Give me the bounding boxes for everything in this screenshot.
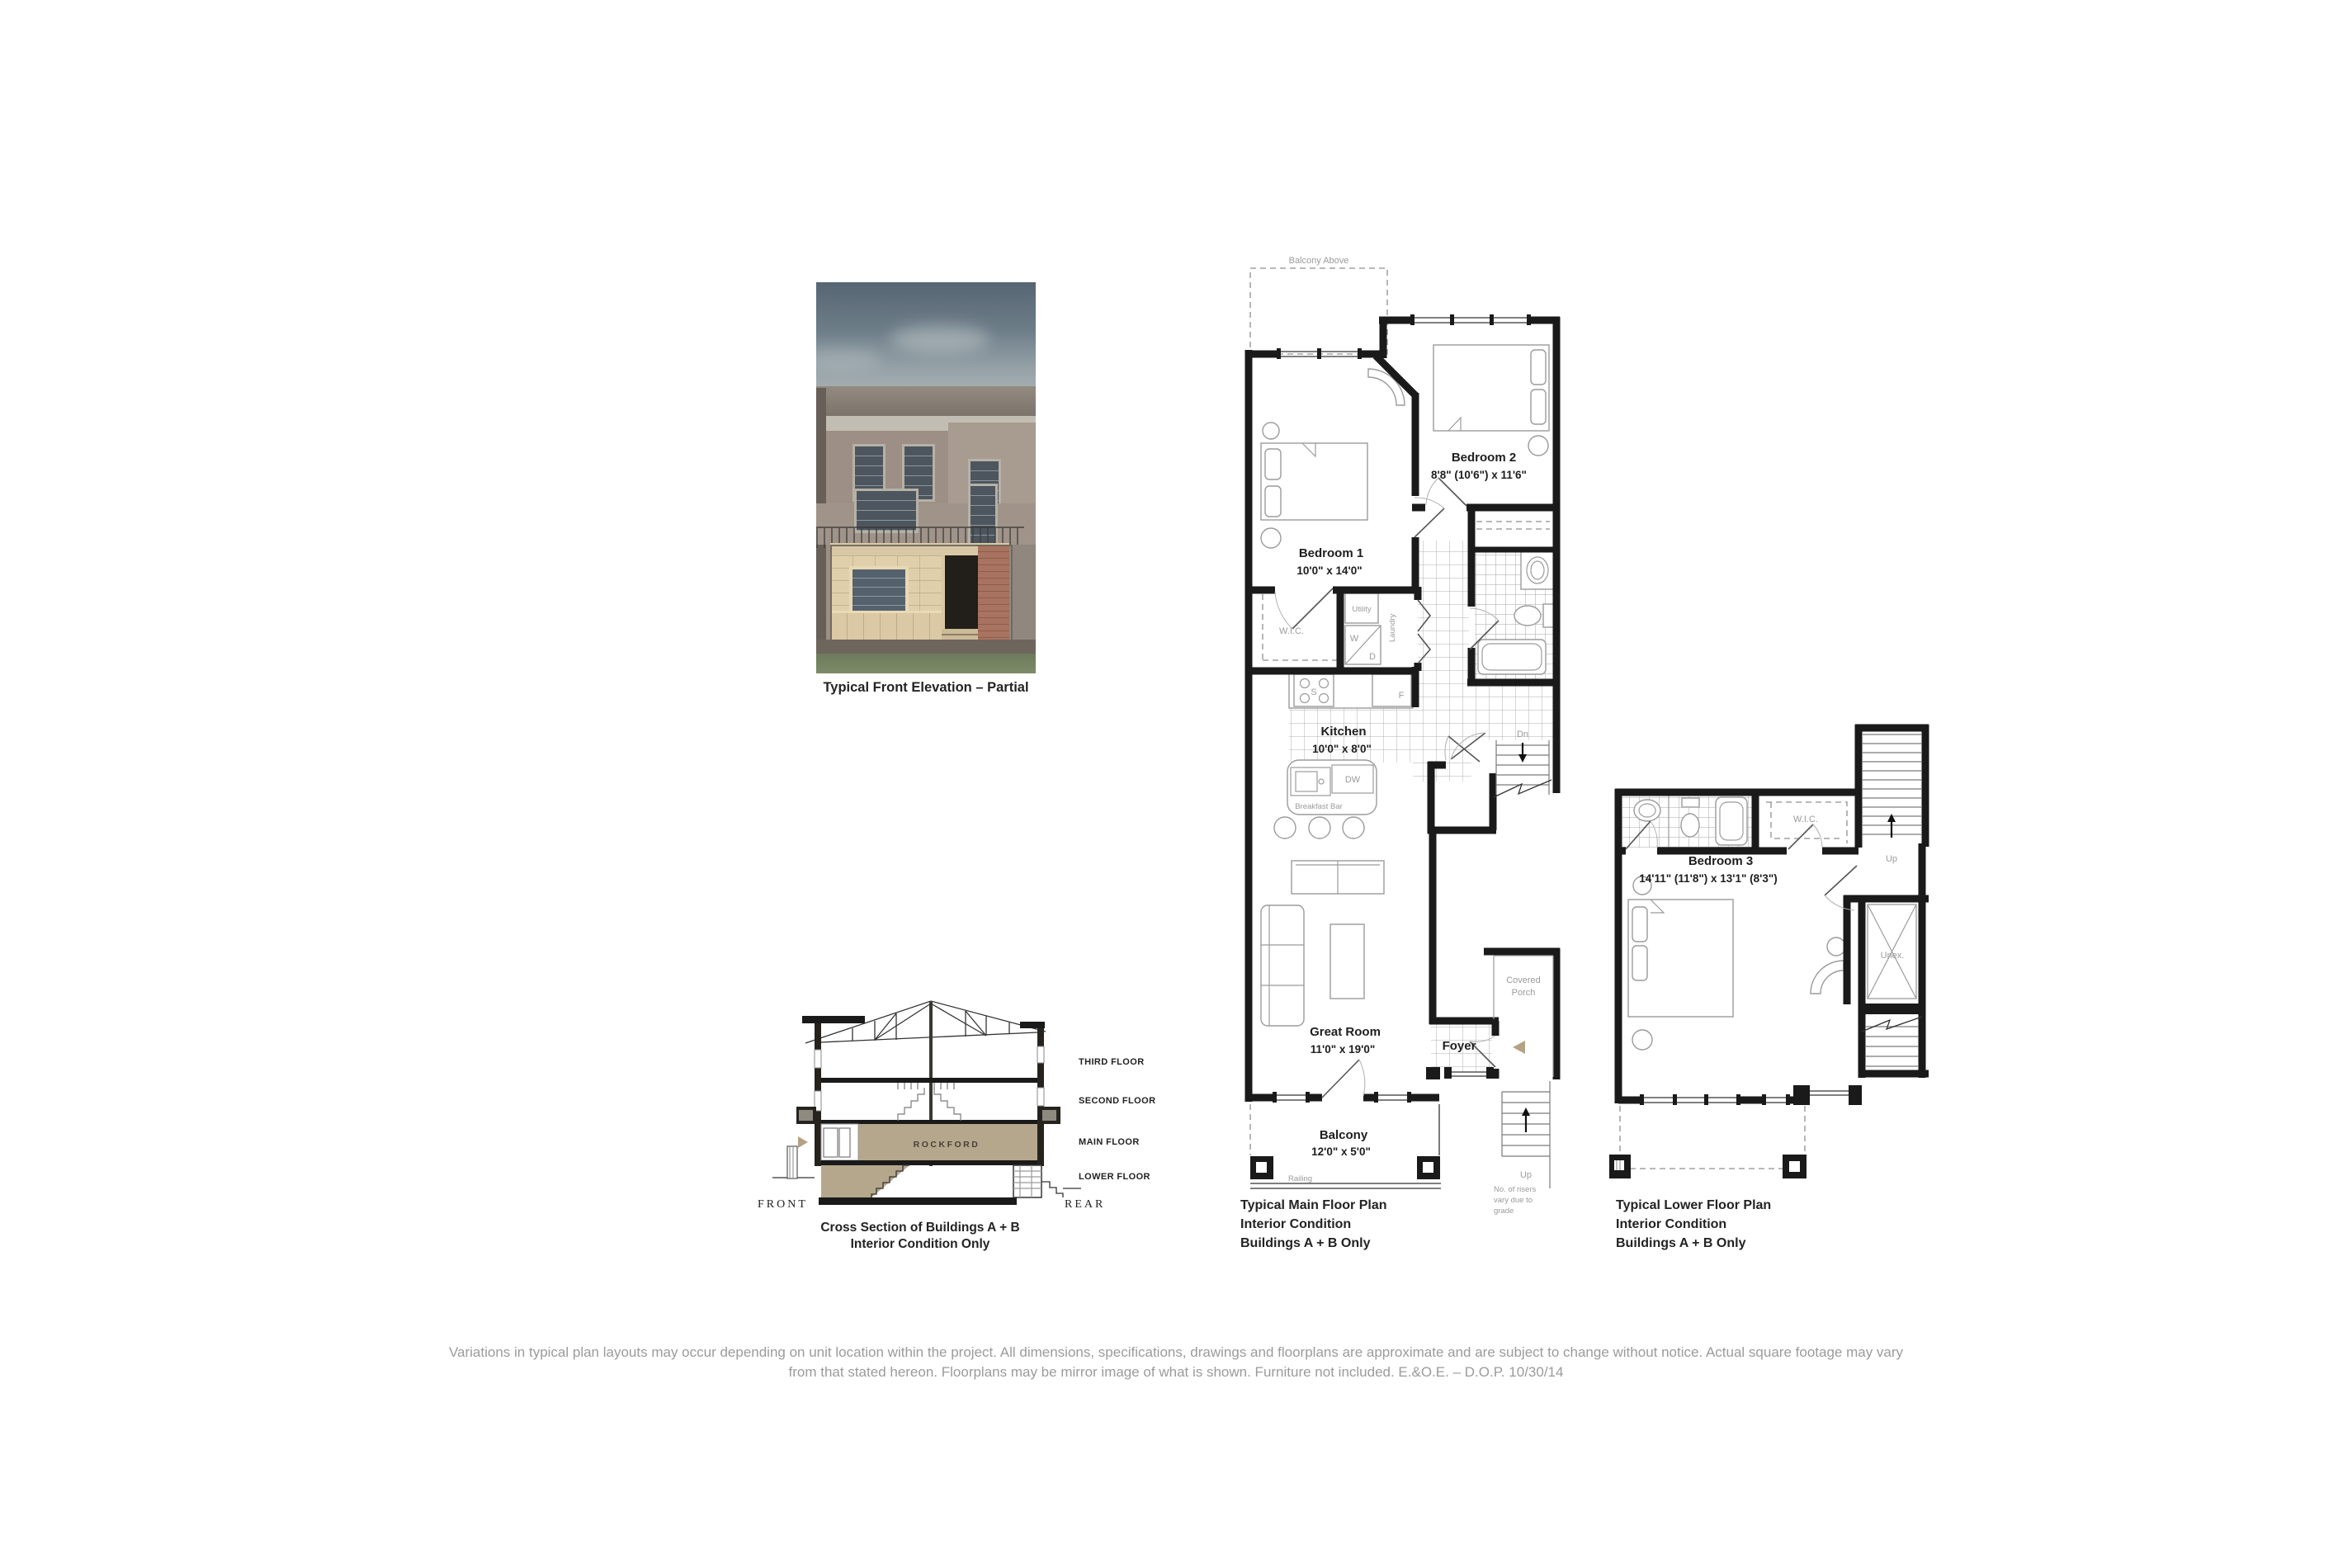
pillow (1632, 907, 1647, 942)
railing-lines (1250, 1183, 1441, 1188)
disclaimer: Variations in typical plan layouts may o… (0, 1343, 2352, 1382)
main-floor-plan-drawing: Balcony Above (1238, 248, 1568, 1242)
stair-railing (898, 1083, 954, 1089)
cross-section-caption: Cross Section of Buildings A + B Interio… (813, 1220, 1027, 1252)
corner-chair (1811, 961, 1844, 994)
pillow (1265, 486, 1281, 517)
bedroom2-window (1413, 318, 1529, 323)
basement-stairs (1866, 1027, 1919, 1066)
main-floor-label: MAIN FLOOR (1079, 1137, 1140, 1147)
washer-label: W (1350, 634, 1359, 644)
coffee-table (1330, 924, 1364, 999)
dn-label: Dn (1517, 730, 1528, 739)
lower-stair-wedge (821, 1165, 909, 1197)
wic-door (1788, 824, 1813, 849)
third-floor-slab (821, 1078, 1037, 1083)
bedroom1-dims: 10'0" x 14'0" (1296, 564, 1362, 577)
unex-divider (1858, 1004, 1925, 1014)
pillow (1265, 449, 1281, 479)
stool (1274, 817, 1296, 838)
balcony-dims: 12'0" x 5'0" (1311, 1145, 1371, 1158)
window-notch (1037, 1046, 1044, 1063)
covered-porch-label2: Porch (1512, 988, 1536, 998)
second-floor-label: SECOND FLOOR (1079, 1096, 1155, 1106)
bedroom2-dims: 8'8" (10'6") x 11'6" (1431, 469, 1527, 481)
highlight-box (830, 545, 1013, 643)
stool (1343, 817, 1364, 838)
toilet (1514, 606, 1541, 626)
fridge (1372, 674, 1411, 706)
patio-outline (1620, 1106, 1805, 1169)
rear-pier (1013, 1165, 1041, 1197)
covered-porch-label1: Covered (1506, 975, 1541, 985)
rear-balcony-glass (1042, 1110, 1056, 1121)
pillow (1531, 390, 1546, 424)
balcony-label: Balcony (1320, 1128, 1368, 1142)
corridor-tile (1418, 541, 1469, 671)
sofa (1261, 905, 1304, 1026)
rockford-label: ROCKFORD (914, 1140, 980, 1150)
linen-shelves (1476, 522, 1550, 529)
risers-note-3: grade (1494, 1207, 1514, 1216)
bedroom2-label: Bedroom 2 (1452, 451, 1516, 465)
front-elevation-photo (816, 282, 1036, 673)
rear-steps-and-grade (1041, 1182, 1081, 1197)
laundry-label: Laundry (1388, 613, 1397, 642)
nightstand (1632, 1030, 1652, 1050)
pillow (1531, 350, 1546, 385)
shaded-right-strip (1009, 545, 1036, 640)
main-caption-line3: Buildings A + B Only (1240, 1234, 1387, 1253)
footing (819, 1197, 1017, 1205)
window-notch (815, 1050, 821, 1068)
porch-outline (1494, 956, 1553, 1077)
nightstand (1528, 436, 1548, 456)
entry-arrow-icon (1513, 1041, 1525, 1054)
kitchen-dims: 10'0" x 8'0" (1312, 743, 1372, 755)
main-floor-slab (821, 1160, 1037, 1165)
balcony-door (1322, 1060, 1359, 1098)
fridge-label: F (1399, 691, 1405, 701)
railing-label: Railing (1288, 1174, 1312, 1183)
rear-label: REAR (1065, 1198, 1105, 1211)
hall-tile (1471, 682, 1554, 740)
stool (1309, 817, 1330, 838)
risers-note-2: vary due to (1494, 1196, 1533, 1205)
front-label: FRONT (758, 1198, 808, 1211)
bedroom1-label: Bedroom 1 (1299, 546, 1363, 560)
tub (1716, 797, 1747, 845)
front-cornice (802, 1016, 865, 1023)
cs-caption-line1: Cross Section of Buildings A + B (813, 1220, 1027, 1236)
lower-caption-line2: Interior Condition (1616, 1215, 1771, 1234)
great-room-label: Great Room (1310, 1025, 1381, 1039)
floorplan-sheet: Typical Front Elevation – Partial (0, 0, 2352, 1568)
elevation-caption: Typical Front Elevation – Partial (800, 680, 1052, 696)
foyer-label: Foyer (1443, 1039, 1476, 1053)
tub (1478, 640, 1546, 674)
stove-label: S (1311, 687, 1316, 697)
nightstand (1263, 423, 1279, 439)
risers-note-1: No. of risers (1494, 1185, 1536, 1194)
hall-door (1415, 508, 1444, 537)
second-floor-slab (821, 1120, 1037, 1124)
third-floor-label: THIRD FLOOR (1079, 1057, 1145, 1067)
door-jamb (1849, 1085, 1862, 1105)
toilet-tank (1682, 798, 1699, 807)
great-room-dims: 11'0" x 19'0" (1311, 1043, 1376, 1056)
dishwasher-label: DW (1345, 775, 1361, 785)
bedroom2-door (1438, 478, 1466, 506)
lower-plan-caption: Typical Lower Floor Plan Interior Condit… (1616, 1196, 1771, 1253)
bedroom3-windows (1642, 1098, 1788, 1103)
toilet (1681, 814, 1699, 837)
nightstand (1261, 528, 1281, 548)
unex-label: Unex. (1881, 951, 1905, 961)
window-notch (1037, 1088, 1044, 1106)
rear-cornice (1020, 1022, 1045, 1028)
main-plan-caption: Typical Main Floor Plan Interior Conditi… (1240, 1196, 1387, 1253)
front-balcony-glass (799, 1110, 813, 1121)
foyer-window (1452, 1072, 1486, 1076)
walkout-door (1810, 1091, 1849, 1095)
wic-label: W.I.C. (1793, 815, 1818, 824)
wic-label: W.I.C. (1279, 626, 1304, 636)
disclaimer-line1: Variations in typical plan layouts may o… (0, 1343, 2352, 1363)
door-jamb (1793, 1085, 1810, 1105)
great-room-windows (1275, 1095, 1410, 1100)
up-label: Up (1886, 854, 1897, 864)
toilet-tank (1543, 604, 1554, 627)
cloud (890, 325, 989, 353)
cs-caption-line2: Interior Condition Only (813, 1236, 1027, 1253)
pillow (1632, 946, 1647, 980)
main-caption-line2: Interior Condition (1240, 1215, 1387, 1234)
up-label: Up (1520, 1170, 1532, 1180)
stair-break-line (1494, 780, 1551, 797)
side-table (1827, 937, 1845, 956)
disclaimer-line2: from that stated hereon. Floorplans may … (0, 1363, 2352, 1382)
lower-floor-plan-drawing: Bedroom 3 14'11" (11'8") x 13'1" (8'3") … (1609, 718, 1939, 1263)
kitchen-label: Kitchen (1320, 725, 1366, 739)
breakfast-bar-label: Breakfast Bar (1295, 802, 1343, 811)
bedroom3-label: Bedroom 3 (1688, 854, 1753, 868)
lower-caption-line3: Buildings A + B Only (1616, 1234, 1771, 1253)
entry-arrow-icon (798, 1136, 808, 1148)
stair-break-line (1862, 1017, 1922, 1032)
balcony-above-label: Balcony Above (1289, 256, 1349, 266)
lower-floor-label: LOWER FLOOR (1079, 1172, 1150, 1182)
front-porch-rail (787, 1146, 797, 1178)
wic-door (1292, 588, 1333, 629)
main-caption-line1: Typical Main Floor Plan (1240, 1196, 1387, 1215)
balcony-above-outline (1250, 268, 1387, 354)
dryer-label: D (1369, 652, 1376, 662)
wall-stub (1426, 1067, 1440, 1079)
bedroom3-dims: 14'11" (11'8") x 13'1" (8'3") (1639, 872, 1778, 885)
utility-label: Utility (1352, 605, 1371, 614)
lower-caption-line1: Typical Lower Floor Plan (1616, 1196, 1771, 1215)
sink (1634, 800, 1660, 821)
bedroom3-door (1825, 866, 1857, 895)
grass (816, 654, 1036, 673)
